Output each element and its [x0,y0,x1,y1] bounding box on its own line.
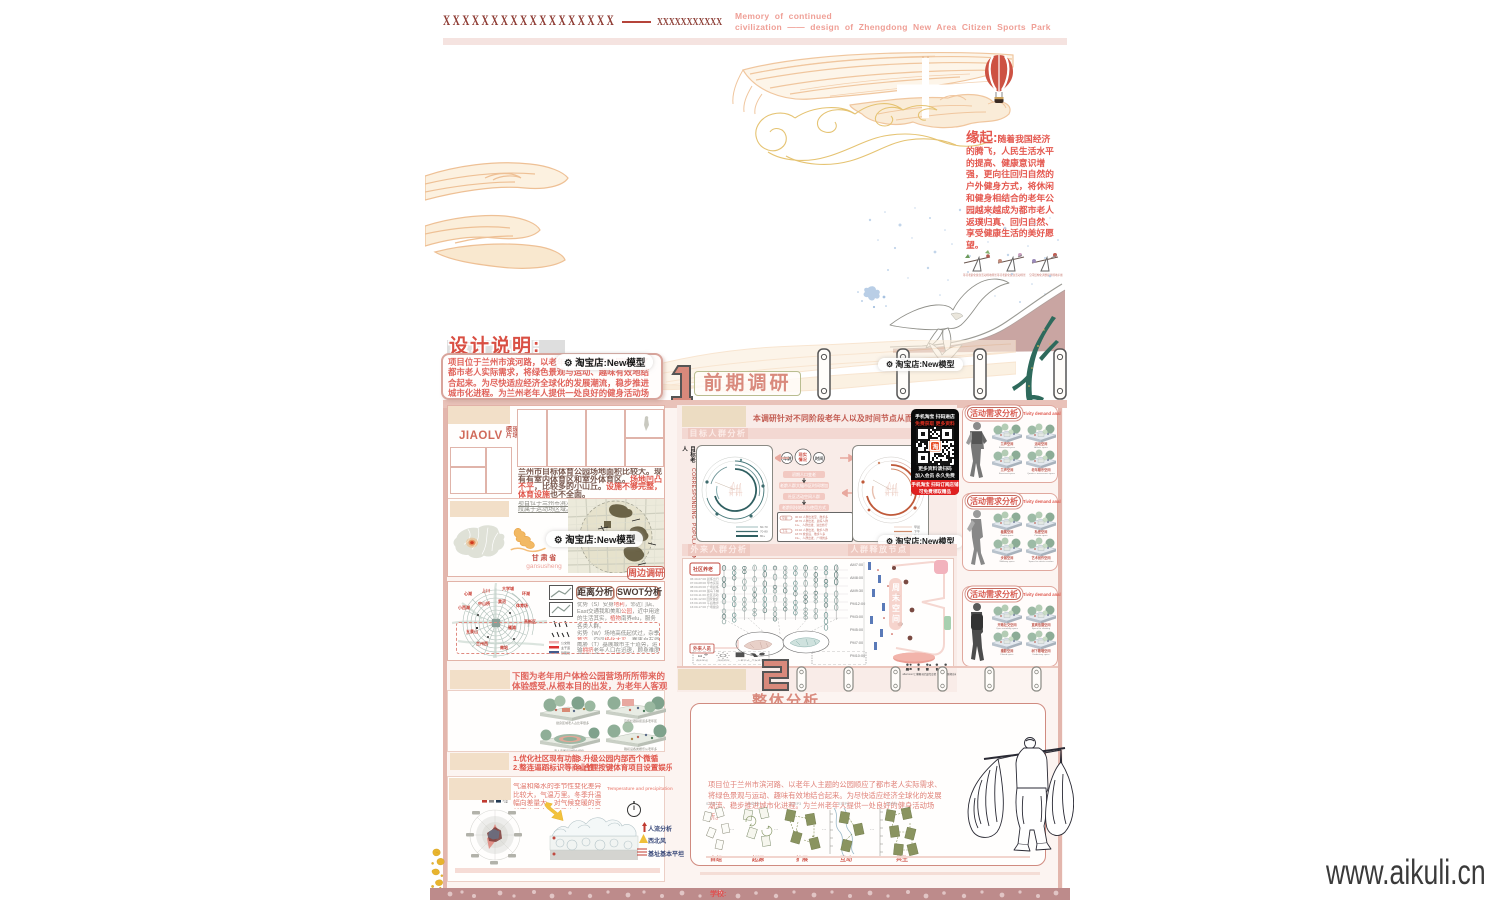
svg-text:AM9:30: AM9:30 [850,589,863,593]
svg-text:时间: 时间 [815,455,823,462]
svg-text:...: ... [822,826,826,832]
svg-text:步展空间: 步展空间 [1001,555,1014,560]
svg-text:下午: 下午 [914,529,920,534]
svg-text:环湖: 环湖 [522,590,530,596]
svg-text:Space for shooting: Space for shooting [1032,627,1051,630]
svg-text:STEP4: STEP4 [838,802,849,806]
svg-text:AM8:00: AM8:00 [850,576,863,580]
svg-text:直爽括摄空间: 直爽括摄空间 [1031,622,1050,627]
svg-text:STEP3: STEP3 [790,802,801,806]
svg-text:撮影空间: 撮影空间 [1001,648,1014,653]
svg-text:下午: 下午 [782,529,788,533]
svg-text:兰声空间: 兰声空间 [1001,441,1014,446]
svg-text:Filmed space: Filmed space [1000,654,1014,656]
svg-text:Open sociability space: Open sociability space [996,627,1019,630]
svg-text:老人专属运动慢车视察: 老人专属运动慢车视察 [554,748,584,751]
svg-text:开敞社交空间: 开敞社交空间 [997,622,1016,627]
svg-text:STEP1: STEP1 [706,802,717,806]
svg-text:社区活动空间人群: 社区活动空间人群 [788,493,820,499]
svg-text:16:00-17:00 广场健身: 16:00-17:00 广场健身 [690,604,719,609]
svg-text:心湖: 心湖 [464,590,472,596]
svg-text:PM12:00: PM12:00 [850,602,865,606]
svg-text:社区养老: 社区养老 [692,566,713,573]
svg-text:运动空间: 运动空间 [1035,441,1048,446]
svg-text:初期人口变老: 初期人口变老 [792,471,816,477]
svg-text:STEP2: STEP2 [748,802,759,806]
svg-text:Understory space: Understory space [1032,653,1050,656]
svg-text:...: ... [730,826,734,832]
svg-text:树下歌唱空间: 树下歌唱空间 [1031,648,1050,653]
svg-text:Quarter s amusement space: Quarter s amusement space [1027,472,1055,475]
svg-text:健身区城老人占比率很多: 健身区城老人占比率很多 [556,720,589,725]
svg-text:艺术创作空间: 艺术创作空间 [1031,555,1050,560]
svg-text:气温: 气温 [503,799,509,803]
svg-text:11+、人群出发、进出旅行: 11+、人群出发、进出旅行 [795,523,828,527]
svg-text:情况: 情况 [799,456,808,463]
svg-text:STEP5: STEP5 [886,802,897,806]
svg-text:看属空间: 看属空间 [1000,529,1014,534]
svg-text:Space for artistic creation: Space for artistic creation [1029,560,1054,563]
svg-text:Prairie space: Prairie space [1001,534,1015,537]
svg-text:19+、人群出发、广场舞多: 19+、人群出发、广场舞多 [795,536,828,540]
svg-text:宣传栏跟踪街道多老年区: 宣传栏跟踪街道多老年区 [624,718,657,723]
svg-text:黄河: 黄河 [497,598,506,604]
svg-text:PM10:00: PM10:00 [850,654,865,658]
svg-text:大学城: 大学城 [502,585,514,591]
svg-text:Exercised space: Exercised space [999,446,1016,449]
svg-text:中山桥: 中山桥 [478,600,490,606]
svg-text:Walkway space: Walkway space [999,561,1015,563]
svg-text:AM7:00: AM7:00 [850,563,863,567]
svg-text:Exercised space: Exercised space [999,472,1016,475]
svg-text:学校:: 学校: [710,889,726,898]
svg-text:_阳光明早_: _阳光明早_ [715,659,732,662]
svg-text:PM3:00: PM3:00 [850,615,863,619]
svg-text:早晨: 早晨 [914,524,920,529]
svg-text:PM5:00: PM5:00 [850,628,863,632]
svg-text:Athletic space: Athletic space [1034,446,1048,449]
svg-text:...: ... [870,826,874,832]
svg-text:70-80: 70-80 [760,530,768,534]
svg-text:PM7:00: PM7:00 [850,641,863,645]
svg-text:淘: 淘 [932,443,939,451]
svg-text:老年顺乐空间: 老年顺乐空间 [1030,467,1050,472]
svg-text:跳初设各类娱乐从老年多: 跳初设各类娱乐从老年多 [624,746,657,751]
svg-text:60-70: 60-70 [760,525,768,529]
svg-text:上川: 上川 [482,587,490,593]
svg-text:体育场: 体育场 [516,602,528,608]
svg-text:80+: 80+ [760,534,765,538]
svg-text:兰声空间: 兰声空间 [1001,467,1014,472]
svg-text:私密空间: 私密空间 [1035,529,1048,534]
svg-text:...: ... [774,826,778,832]
svg-text:Private space: Private space [1034,534,1048,537]
svg-text:早晨: 早晨 [782,516,788,520]
svg-text:游步区设: 游步区设 [696,659,709,662]
svg-text:小西湖: 小西湖 [458,604,470,610]
